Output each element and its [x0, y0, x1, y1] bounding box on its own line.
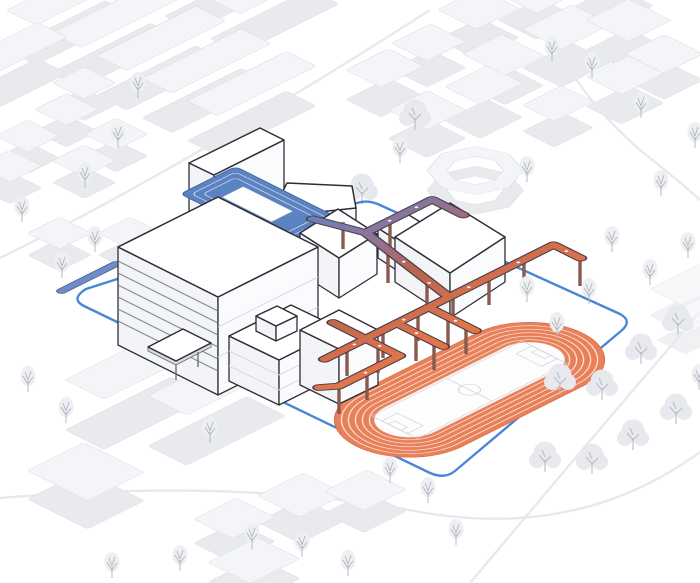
site-diagram: School campus site axonometric diagram	[0, 0, 700, 583]
axonometric-illustration: School campus site axonometric diagram	[0, 0, 700, 583]
